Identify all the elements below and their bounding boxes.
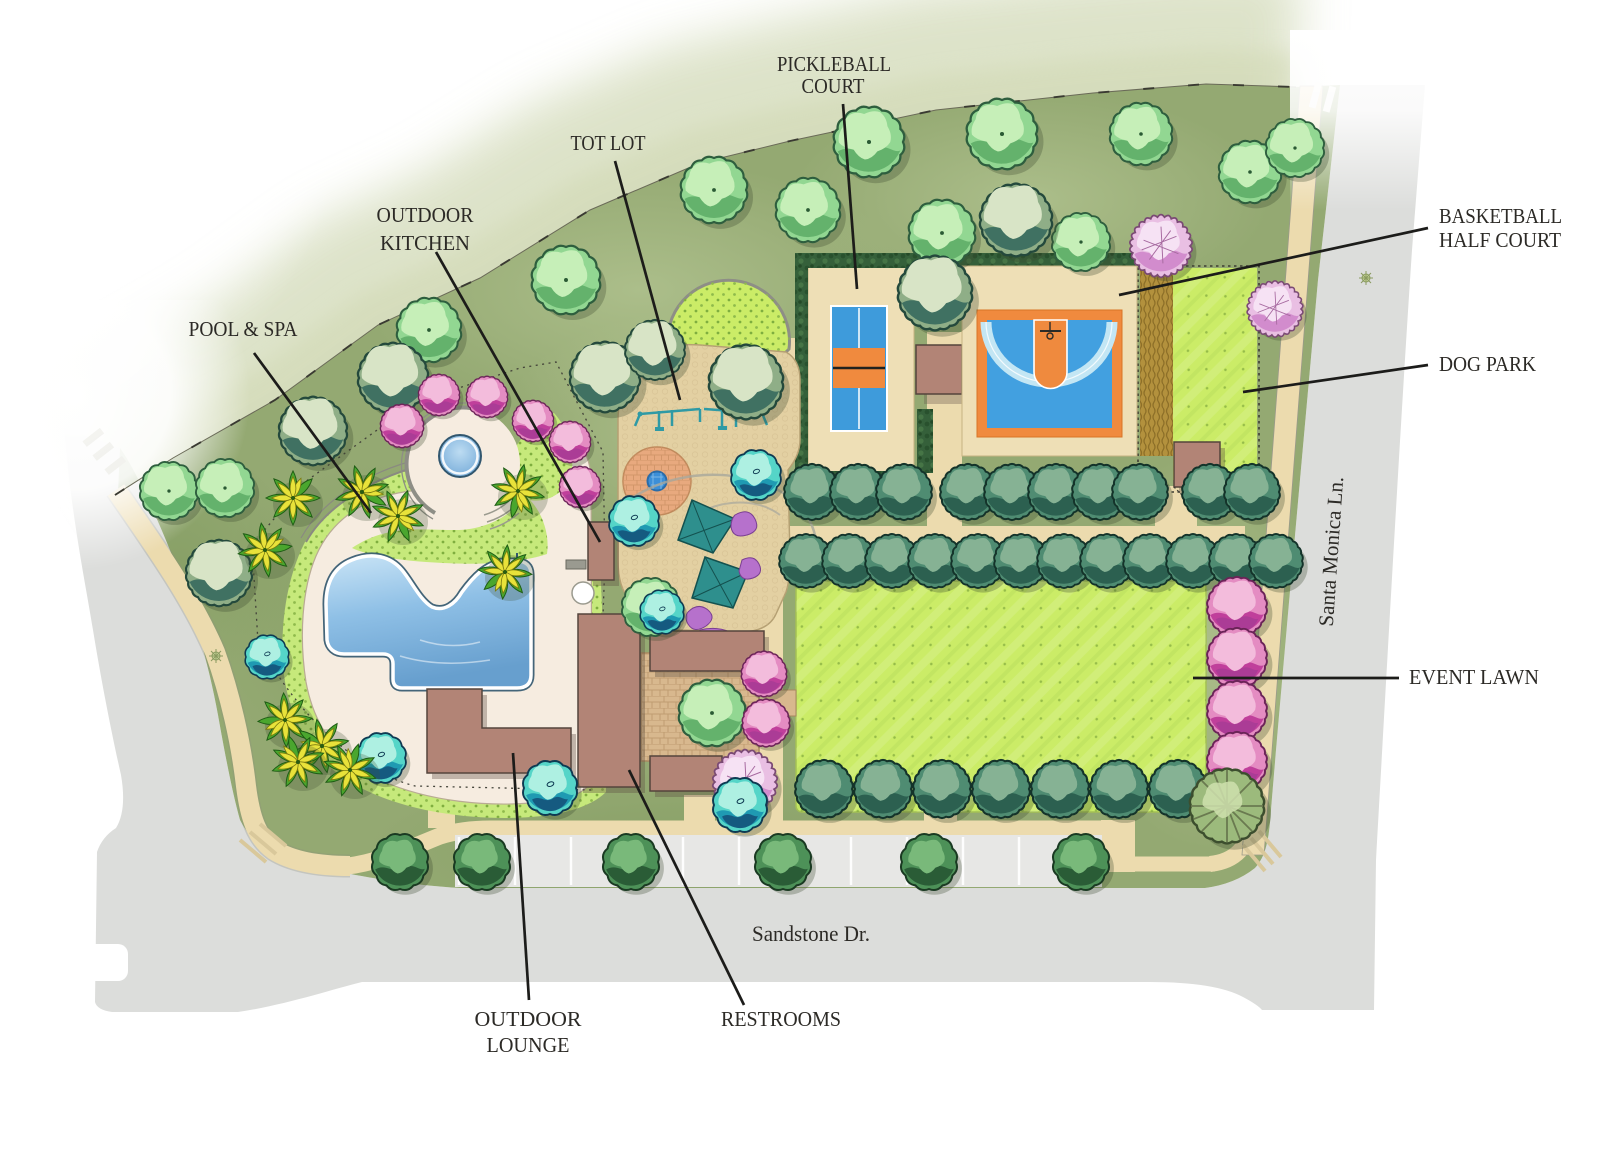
svg-text:RESTROOMS: RESTROOMS xyxy=(721,1007,841,1031)
svg-text:LOUNGE: LOUNGE xyxy=(487,1033,570,1057)
svg-text:COURT: COURT xyxy=(802,74,865,98)
svg-text:KITCHEN: KITCHEN xyxy=(380,231,470,255)
svg-text:POOL & SPA: POOL & SPA xyxy=(189,317,299,341)
svg-text:BASKETBALL: BASKETBALL xyxy=(1439,204,1562,228)
svg-text:Sandstone Dr.: Sandstone Dr. xyxy=(752,921,870,946)
svg-text:OUTDOOR: OUTDOOR xyxy=(475,1007,582,1031)
svg-text:TOT LOT: TOT LOT xyxy=(571,131,646,155)
svg-text:EVENT LAWN: EVENT LAWN xyxy=(1409,665,1539,689)
svg-text:HALF COURT: HALF COURT xyxy=(1439,228,1561,252)
svg-text:PICKLEBALL: PICKLEBALL xyxy=(777,52,891,76)
svg-text:OUTDOOR: OUTDOOR xyxy=(377,203,474,227)
svg-text:DOG PARK: DOG PARK xyxy=(1439,352,1536,376)
